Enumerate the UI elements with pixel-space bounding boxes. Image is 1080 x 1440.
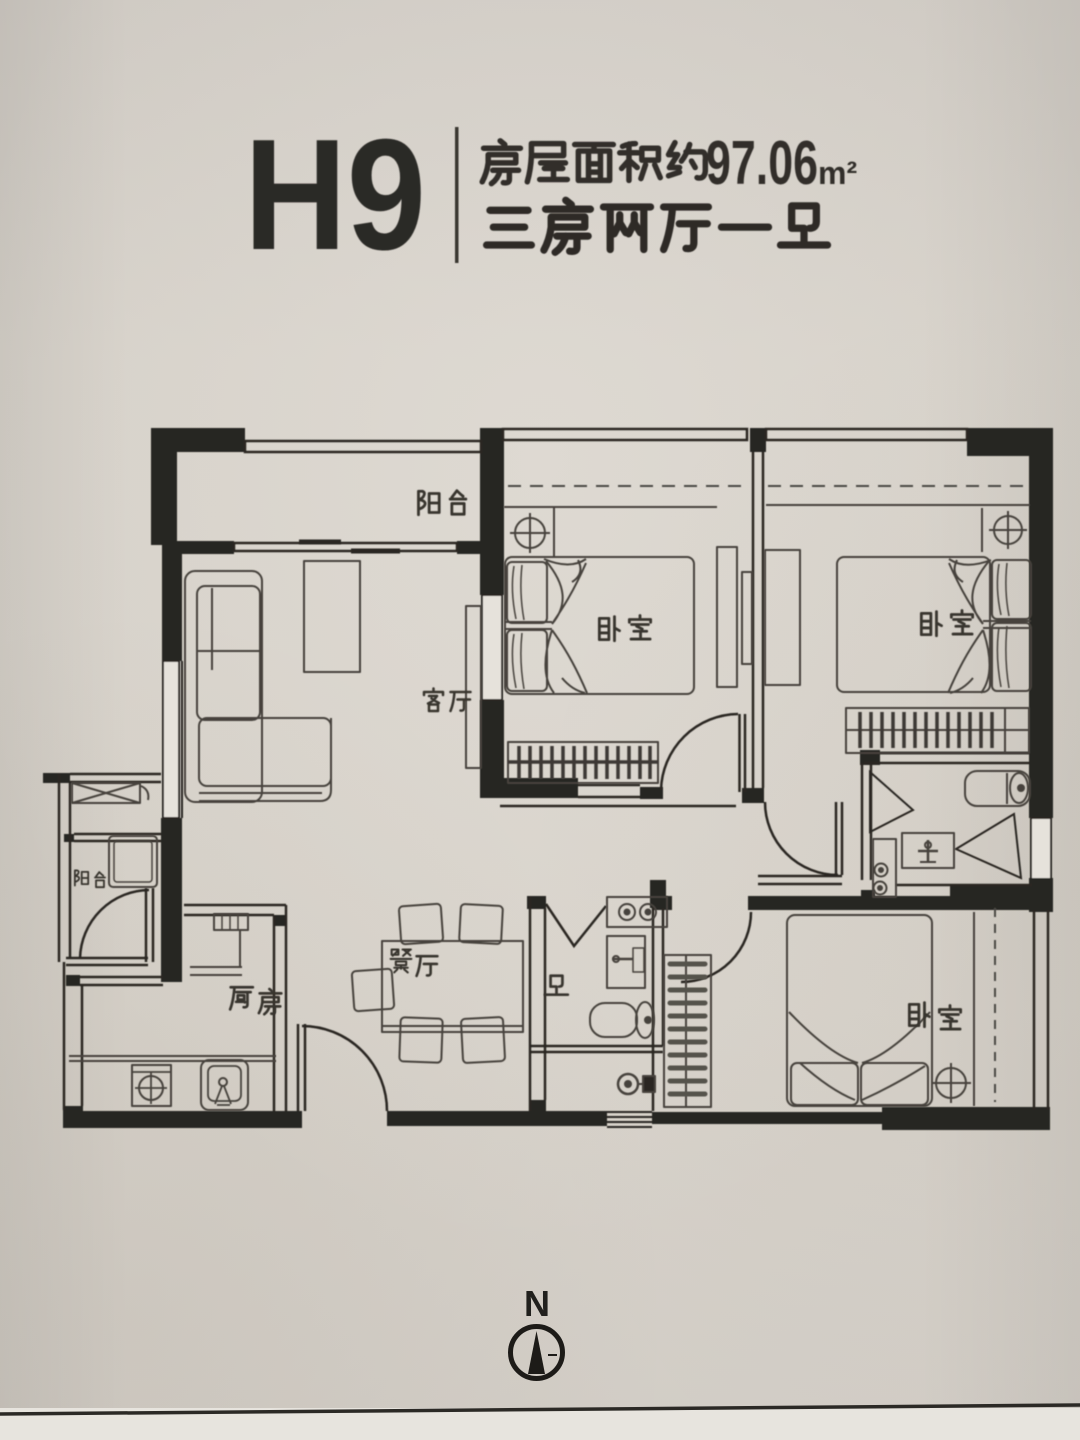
svg-text:m²: m² [818, 155, 857, 191]
svg-text:H9: H9 [244, 107, 426, 283]
svg-text:N: N [524, 1283, 550, 1324]
svg-text:97.06: 97.06 [706, 129, 818, 198]
